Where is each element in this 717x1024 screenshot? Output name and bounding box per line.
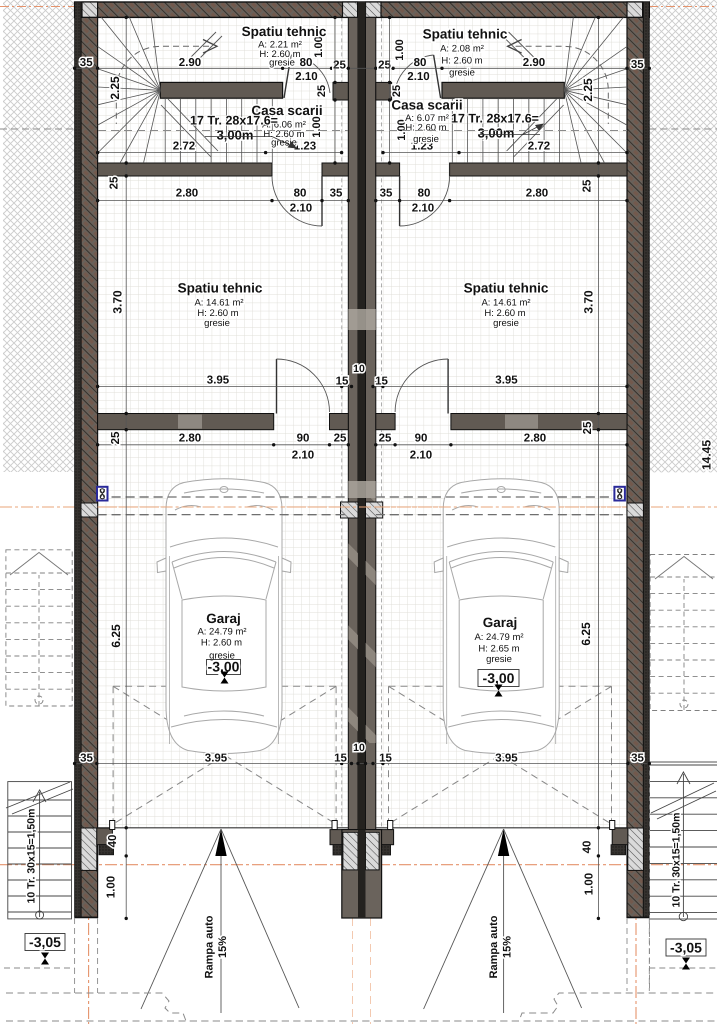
svg-text:2.72: 2.72 bbox=[173, 141, 195, 153]
svg-text:3.95: 3.95 bbox=[495, 375, 518, 387]
svg-text:1.00: 1.00 bbox=[311, 116, 323, 137]
svg-text:1.00: 1.00 bbox=[106, 876, 118, 898]
svg-text:6.25: 6.25 bbox=[579, 622, 593, 646]
svg-text:25: 25 bbox=[391, 85, 403, 97]
svg-text:Spatiu tehnic: Spatiu tehnic bbox=[464, 281, 549, 296]
svg-text:2.90: 2.90 bbox=[179, 57, 201, 69]
svg-text:1.00: 1.00 bbox=[394, 39, 406, 60]
svg-text:3.70: 3.70 bbox=[111, 290, 125, 314]
svg-text:2.25: 2.25 bbox=[108, 76, 122, 100]
svg-text:35: 35 bbox=[631, 59, 644, 71]
svg-text:2.80: 2.80 bbox=[179, 433, 201, 445]
svg-text:15%: 15% bbox=[217, 936, 229, 958]
svg-text:35: 35 bbox=[631, 753, 644, 765]
svg-text:1.23: 1.23 bbox=[294, 141, 316, 153]
svg-text:2.10: 2.10 bbox=[410, 450, 432, 462]
svg-text:Garaj: Garaj bbox=[206, 611, 241, 626]
svg-text:H: 2.60 m: H: 2.60 m bbox=[441, 56, 482, 67]
svg-text:35: 35 bbox=[80, 753, 93, 765]
svg-text:17 Tr. 28x17.6=: 17 Tr. 28x17.6= bbox=[190, 114, 278, 128]
svg-text:Rampa auto: Rampa auto bbox=[488, 915, 500, 978]
svg-text:25: 25 bbox=[379, 433, 392, 445]
svg-text:80: 80 bbox=[418, 188, 431, 200]
svg-text:-3,05: -3,05 bbox=[670, 940, 702, 956]
svg-text:2.10: 2.10 bbox=[295, 71, 317, 83]
svg-text:2.72: 2.72 bbox=[528, 141, 550, 153]
svg-text:gresie: gresie bbox=[493, 318, 519, 329]
svg-text:35: 35 bbox=[330, 188, 343, 200]
svg-text:gresie: gresie bbox=[486, 654, 512, 665]
svg-text:-3,05: -3,05 bbox=[29, 934, 61, 950]
svg-text:gresie: gresie bbox=[204, 318, 230, 329]
svg-text:1.00: 1.00 bbox=[584, 873, 596, 895]
svg-text:40: 40 bbox=[582, 841, 594, 854]
svg-text:2.10: 2.10 bbox=[412, 203, 434, 215]
svg-text:80: 80 bbox=[300, 57, 313, 69]
svg-text:10 Tr. 30x15=1,50m: 10 Tr. 30x15=1,50m bbox=[26, 809, 38, 904]
svg-text:2.90: 2.90 bbox=[523, 57, 545, 69]
svg-text:40: 40 bbox=[107, 835, 119, 848]
svg-text:17 Tr. 28x17.6=: 17 Tr. 28x17.6= bbox=[451, 112, 539, 126]
svg-text:Spatiu tehnic: Spatiu tehnic bbox=[178, 281, 263, 296]
svg-text:25: 25 bbox=[582, 421, 594, 434]
svg-text:3,00m: 3,00m bbox=[217, 128, 254, 143]
svg-text:Rampa auto: Rampa auto bbox=[204, 915, 216, 978]
svg-text:25: 25 bbox=[582, 179, 594, 192]
svg-text:2.25: 2.25 bbox=[581, 78, 595, 102]
svg-text:A: 24.79 m²: A: 24.79 m² bbox=[474, 632, 523, 643]
svg-text:15%: 15% bbox=[502, 936, 514, 958]
svg-text:2.10: 2.10 bbox=[407, 71, 429, 83]
svg-text:gresie: gresie bbox=[269, 58, 295, 69]
svg-text:3.95: 3.95 bbox=[205, 753, 228, 765]
svg-text:25: 25 bbox=[110, 431, 122, 444]
svg-text:10 Tr. 30x15=1,50m: 10 Tr. 30x15=1,50m bbox=[671, 813, 683, 908]
svg-text:H: 2.60 m: H: 2.60 m bbox=[201, 638, 242, 649]
svg-text:35: 35 bbox=[80, 57, 93, 69]
svg-text:1.00: 1.00 bbox=[313, 36, 325, 57]
svg-text:gresie: gresie bbox=[449, 68, 475, 79]
svg-text:14.45: 14.45 bbox=[700, 440, 714, 470]
svg-text:Spatiu tehnic: Spatiu tehnic bbox=[242, 24, 327, 39]
svg-text:A: 24.79 m²: A: 24.79 m² bbox=[197, 627, 246, 638]
svg-text:15: 15 bbox=[334, 753, 347, 765]
svg-text:A: 14.61 m²: A: 14.61 m² bbox=[481, 298, 530, 309]
svg-text:H: 2.60 m: H: 2.60 m bbox=[405, 122, 446, 133]
svg-text:15: 15 bbox=[336, 376, 349, 388]
svg-text:2.10: 2.10 bbox=[290, 203, 312, 215]
svg-text:10: 10 bbox=[353, 363, 365, 375]
svg-text:Garaj: Garaj bbox=[483, 615, 518, 630]
svg-text:-3,00: -3,00 bbox=[483, 670, 515, 686]
svg-text:15: 15 bbox=[375, 376, 388, 388]
svg-text:6.25: 6.25 bbox=[109, 624, 123, 648]
svg-text:25: 25 bbox=[316, 85, 328, 97]
svg-text:2.80: 2.80 bbox=[176, 188, 198, 200]
svg-text:Spatiu tehnic: Spatiu tehnic bbox=[423, 27, 508, 42]
svg-text:90: 90 bbox=[297, 433, 310, 445]
svg-text:3.70: 3.70 bbox=[582, 290, 596, 314]
svg-text:H: 2.65 m: H: 2.65 m bbox=[478, 644, 519, 655]
svg-text:2.10: 2.10 bbox=[292, 450, 314, 462]
svg-text:2.80: 2.80 bbox=[524, 433, 546, 445]
svg-text:gresie: gresie bbox=[413, 134, 439, 145]
svg-text:A: 14.61 m²: A: 14.61 m² bbox=[194, 298, 243, 309]
svg-text:2.80: 2.80 bbox=[526, 188, 548, 200]
svg-text:3.95: 3.95 bbox=[207, 375, 230, 387]
svg-text:10: 10 bbox=[353, 742, 365, 754]
svg-text:80: 80 bbox=[414, 57, 427, 69]
svg-text:3.95: 3.95 bbox=[495, 753, 518, 765]
svg-text:80: 80 bbox=[294, 188, 307, 200]
svg-text:15: 15 bbox=[379, 753, 392, 765]
svg-text:35: 35 bbox=[380, 188, 393, 200]
svg-text:Casa scarii: Casa scarii bbox=[391, 98, 462, 113]
svg-text:90: 90 bbox=[415, 433, 428, 445]
svg-text:3,00m: 3,00m bbox=[478, 126, 515, 141]
svg-text:25: 25 bbox=[334, 433, 347, 445]
svg-text:25: 25 bbox=[109, 176, 121, 189]
svg-text:A: 2.08 m²: A: 2.08 m² bbox=[440, 44, 484, 55]
